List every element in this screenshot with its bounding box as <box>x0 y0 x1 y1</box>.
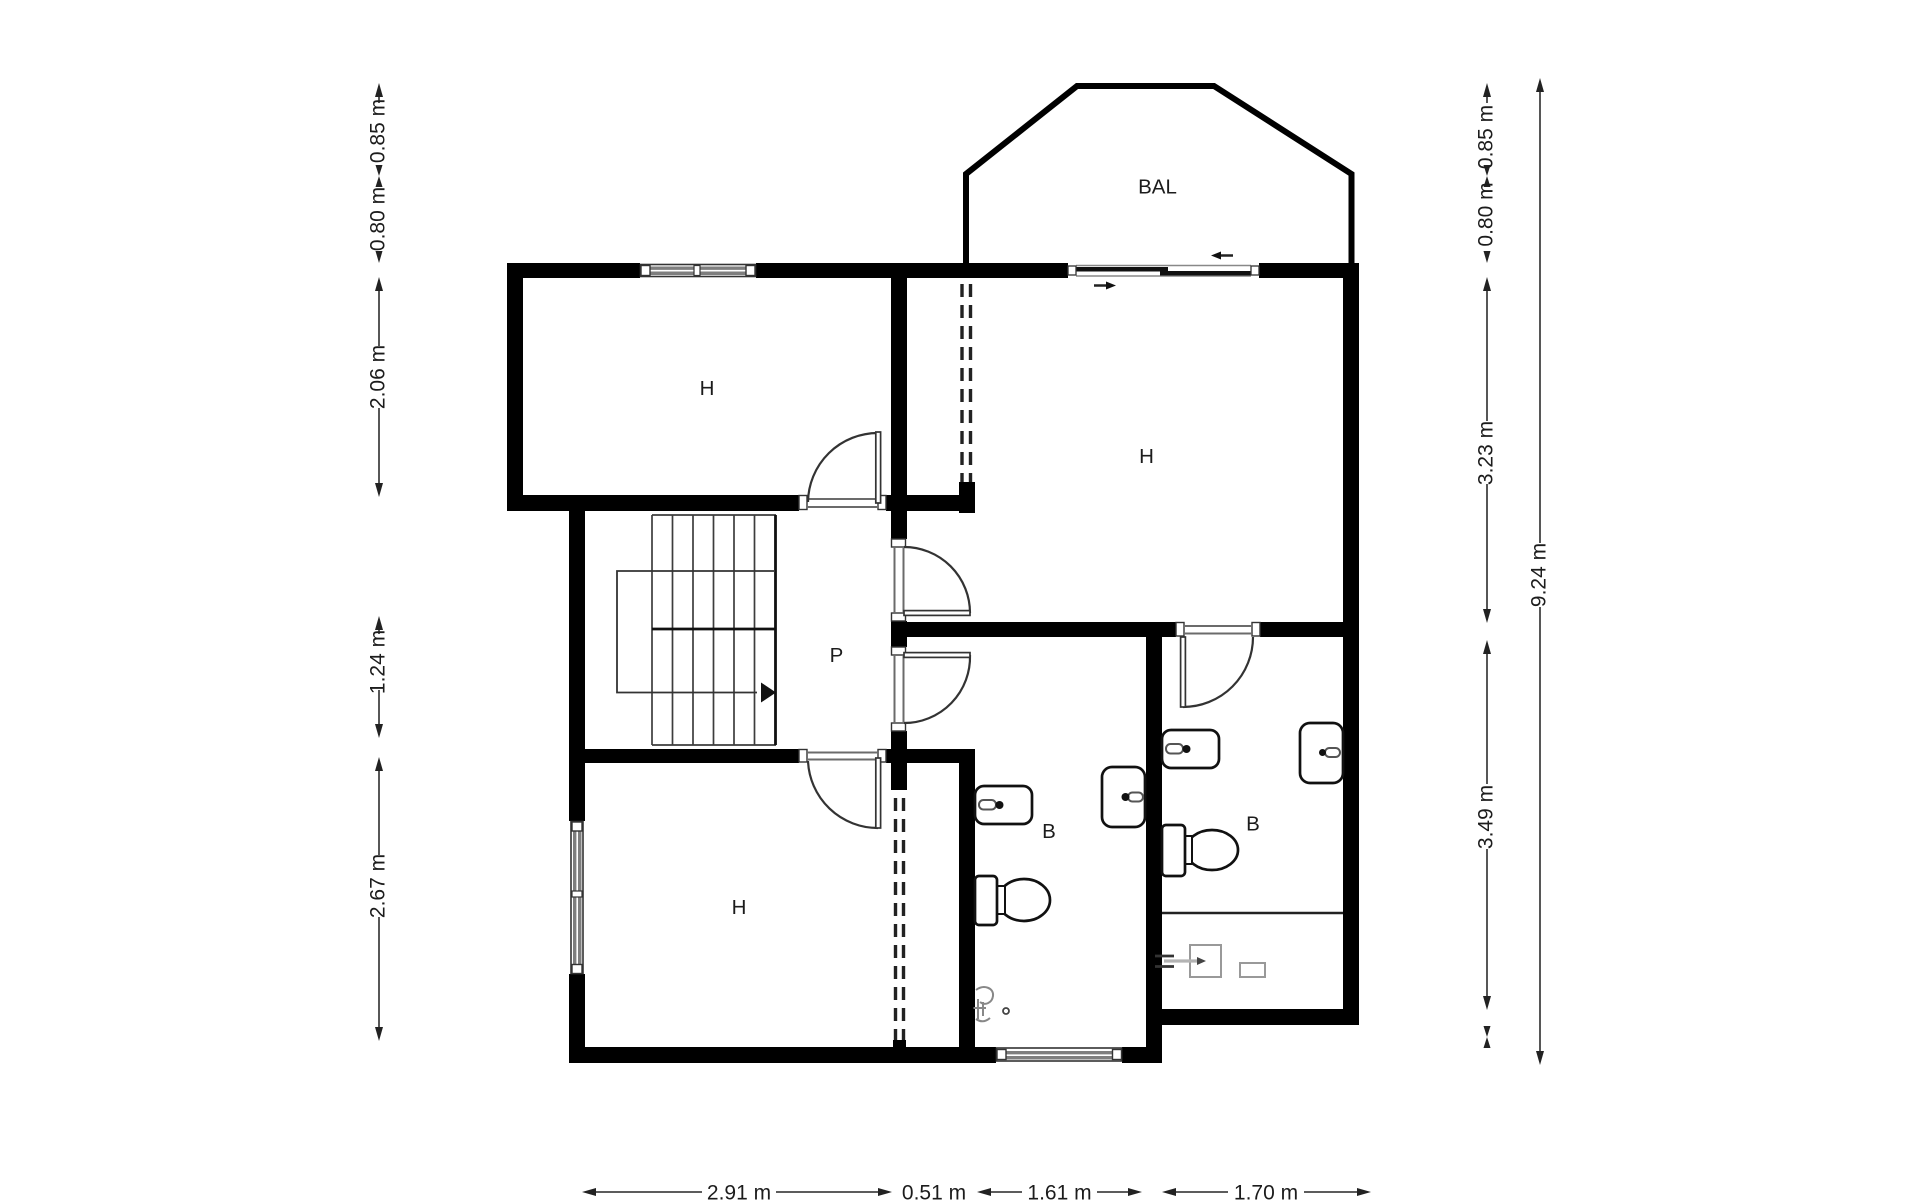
svg-text:1.61 m: 1.61 m <box>1027 1182 1091 1200</box>
svg-text:0.51 m: 0.51 m <box>902 1182 966 1200</box>
svg-text:1.24 m: 1.24 m <box>367 630 390 694</box>
svg-text:P: P <box>830 644 844 667</box>
svg-text:2.67 m: 2.67 m <box>367 854 390 918</box>
svg-text:H: H <box>732 896 747 919</box>
svg-text:0.80 m: 0.80 m <box>367 187 390 251</box>
svg-text:H: H <box>700 377 715 400</box>
svg-text:9.24 m: 9.24 m <box>1528 543 1551 607</box>
svg-text:2.91 m: 2.91 m <box>707 1182 771 1200</box>
svg-text:0.85 m: 0.85 m <box>367 99 390 163</box>
svg-text:B: B <box>1246 813 1260 836</box>
svg-text:B: B <box>1042 820 1056 843</box>
svg-text:3.23 m: 3.23 m <box>1475 421 1498 485</box>
svg-text:0.85 m: 0.85 m <box>1475 105 1498 169</box>
svg-text:BAL: BAL <box>1138 176 1177 199</box>
svg-text:0.80 m: 0.80 m <box>1475 182 1498 246</box>
svg-text:3.49 m: 3.49 m <box>1475 785 1498 849</box>
svg-text:1.70 m: 1.70 m <box>1234 1182 1298 1200</box>
svg-text:H: H <box>1139 445 1154 468</box>
svg-text:2.06 m: 2.06 m <box>367 345 390 409</box>
